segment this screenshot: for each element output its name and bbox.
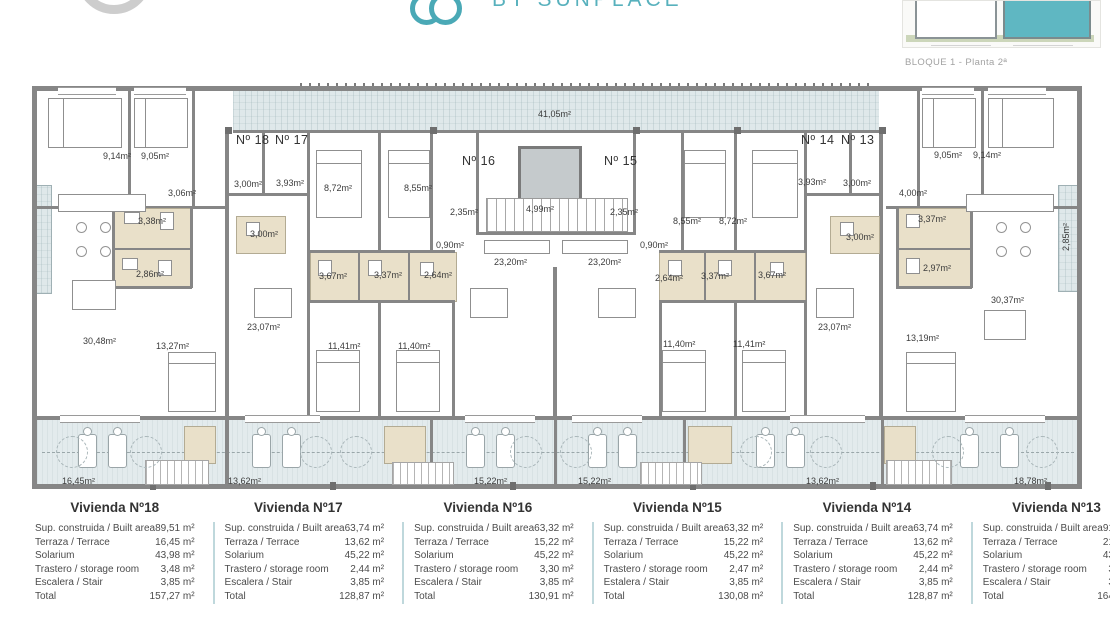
row-label: Solarium bbox=[793, 549, 832, 563]
table-row: Total164,33 m² bbox=[983, 590, 1110, 604]
area-label: 23,07m² bbox=[818, 322, 851, 332]
area-label: 0,90m² bbox=[436, 240, 464, 250]
area-label: 3,93m² bbox=[798, 177, 826, 187]
row-value: 43,98 m² bbox=[1103, 549, 1110, 563]
table-rows: Sup. construida / Built area63,74 m²Terr… bbox=[781, 522, 953, 604]
row-label: Solarium bbox=[414, 549, 453, 563]
row-label: Total bbox=[35, 590, 56, 604]
table-row: Escalera / Stair3,85 m² bbox=[225, 576, 385, 590]
row-label: Sup. construida / Built area bbox=[793, 522, 913, 536]
row-label: Estalera / Stair bbox=[604, 576, 670, 590]
area-label: 13,19m² bbox=[906, 333, 939, 343]
table-title: Vivienda Nº14 bbox=[781, 500, 953, 515]
area-label: 2,86m² bbox=[136, 269, 164, 279]
terrace-area-label: 15,22m² bbox=[474, 476, 507, 486]
row-label: Trastero / storage room bbox=[983, 563, 1087, 577]
unit-number-label: Nº 15 bbox=[604, 154, 637, 168]
area-label: 2,64m² bbox=[655, 273, 683, 283]
row-value: 21,63 m² bbox=[1103, 536, 1110, 550]
table-row: Solarium45,22 m² bbox=[414, 549, 574, 563]
table-title: Vivienda Nº17 bbox=[213, 500, 385, 515]
table-row: Sup. construida / Built area63,74 m² bbox=[793, 522, 953, 536]
terrace-area-label: 16,45m² bbox=[62, 476, 95, 486]
table-row: Trastero / storage room2,44 m² bbox=[793, 563, 953, 577]
table-row: Escalera / Stair3,85 m² bbox=[35, 576, 195, 590]
area-label: 2,97m² bbox=[923, 263, 951, 273]
terrace-area-label: 13,62m² bbox=[228, 476, 261, 486]
area-label: 8,55m² bbox=[673, 216, 701, 226]
table-row: Trastero / storage room2,47 m² bbox=[604, 563, 764, 577]
row-label: Total bbox=[793, 590, 814, 604]
table-rows: Sup. construida / Built area89,51 m²Terr… bbox=[35, 522, 195, 604]
table-row: Solarium43,98 m² bbox=[35, 549, 195, 563]
table-row: Total128,87 m² bbox=[793, 590, 953, 604]
vivienda-summary-table: Vivienda Nº16Sup. construida / Built are… bbox=[393, 500, 583, 604]
row-value: 13,62 m² bbox=[345, 536, 384, 550]
table-rows: Sup. construida / Built area63,32 m²Terr… bbox=[402, 522, 574, 604]
area-label: 8,72m² bbox=[324, 183, 352, 193]
table-row: Trastero / storage room3,48 m² bbox=[35, 563, 195, 577]
area-label: 3,00m² bbox=[250, 229, 278, 239]
table-row: Trastero / storage room3,48 m² bbox=[983, 563, 1110, 577]
table-row: Total130,08 m² bbox=[604, 590, 764, 604]
unit-number-label: Nº 18 bbox=[236, 133, 269, 147]
area-label: 11,40m² bbox=[663, 339, 695, 349]
row-label: Escalera / Stair bbox=[35, 576, 103, 590]
area-label: 3,67m² bbox=[758, 270, 786, 280]
table-row: Solarium43,98 m² bbox=[983, 549, 1110, 563]
row-value: 164,33 m² bbox=[1097, 590, 1110, 604]
table-row: Terraza / Terrace15,22 m² bbox=[414, 536, 574, 550]
area-label: 30,48m² bbox=[83, 336, 116, 346]
terrace-area-label: 13,62m² bbox=[806, 476, 839, 486]
area-label: 8,55m² bbox=[404, 183, 432, 193]
table-row: Escalera / Stair3,85 m² bbox=[983, 576, 1110, 590]
row-value: 128,87 m² bbox=[339, 590, 384, 604]
unit-number-label: Nº 17 bbox=[275, 133, 308, 147]
area-label: 3,00m² bbox=[234, 179, 262, 189]
area-label: 9,14m² bbox=[103, 151, 131, 161]
table-rows: Sup. construida / Built area63,32 m²Terr… bbox=[592, 522, 764, 604]
table-row: Sup. construida / Built area91,39 m² bbox=[983, 522, 1110, 536]
vivienda-summary-table: Vivienda Nº17Sup. construida / Built are… bbox=[204, 500, 394, 604]
area-label: 3,00m² bbox=[843, 178, 871, 188]
row-label: Escalera / Stair bbox=[793, 576, 861, 590]
table-title: Vivienda Nº18 bbox=[35, 500, 195, 515]
area-label: 4,00m² bbox=[899, 188, 927, 198]
area-label: 13,27m² bbox=[156, 341, 189, 351]
table-row: Sup. construida / Built area63,32 m² bbox=[604, 522, 764, 536]
vivienda-summary-table: Vivienda Nº15Sup. construida / Built are… bbox=[583, 500, 773, 604]
row-value: 45,22 m² bbox=[345, 549, 384, 563]
table-row: Solarium45,22 m² bbox=[604, 549, 764, 563]
row-value: 91,39 m² bbox=[1103, 522, 1110, 536]
area-label: 4,99m² bbox=[526, 204, 554, 214]
table-row: Total130,91 m² bbox=[414, 590, 574, 604]
area-tables: Vivienda Nº18Sup. construida / Built are… bbox=[26, 500, 1086, 604]
row-value: 63,32 m² bbox=[534, 522, 573, 536]
table-rows: Sup. construida / Built area63,74 m²Terr… bbox=[213, 522, 385, 604]
area-label: 23,07m² bbox=[247, 322, 280, 332]
row-value: 45,22 m² bbox=[913, 549, 952, 563]
row-value: 130,08 m² bbox=[718, 590, 763, 604]
row-value: 63,74 m² bbox=[913, 522, 952, 536]
table-row: Total128,87 m² bbox=[225, 590, 385, 604]
area-label: 11,40m² bbox=[398, 341, 430, 351]
area-label: 2,35m² bbox=[610, 207, 638, 217]
row-label: Terraza / Terrace bbox=[35, 536, 110, 550]
table-row: Terraza / Terrace15,22 m² bbox=[604, 536, 764, 550]
row-value: 3,48 m² bbox=[161, 563, 195, 577]
table-row: Terraza / Terrace21,63 m² bbox=[983, 536, 1110, 550]
table-row: Escalera / Stair3,85 m² bbox=[793, 576, 953, 590]
row-value: 63,32 m² bbox=[724, 522, 763, 536]
area-label: 9,05m² bbox=[934, 150, 962, 160]
table-row: Terraza / Terrace13,62 m² bbox=[793, 536, 953, 550]
area-label: 3,06m² bbox=[168, 188, 196, 198]
row-value: 3,85 m² bbox=[729, 576, 763, 590]
row-value: 157,27 m² bbox=[150, 590, 195, 604]
row-label: Solarium bbox=[983, 549, 1022, 563]
row-label: Terraza / Terrace bbox=[793, 536, 868, 550]
table-rows: Sup. construida / Built area91,39 m²Terr… bbox=[971, 522, 1110, 604]
area-label: 2,85m² bbox=[1061, 223, 1071, 251]
area-label: 41,05m² bbox=[538, 109, 571, 119]
area-label: 3,93m² bbox=[276, 178, 304, 188]
row-value: 3,85 m² bbox=[540, 576, 574, 590]
row-label: Total bbox=[983, 590, 1004, 604]
unit-number-label: Nº 13 bbox=[841, 133, 874, 147]
area-label: 2,64m² bbox=[424, 270, 452, 280]
row-label: Escalera / Stair bbox=[983, 576, 1051, 590]
row-value: 13,62 m² bbox=[913, 536, 952, 550]
row-value: 2,44 m² bbox=[919, 563, 953, 577]
row-value: 3,85 m² bbox=[161, 576, 195, 590]
area-label: 9,05m² bbox=[141, 151, 169, 161]
row-label: Terraza / Terrace bbox=[983, 536, 1058, 550]
row-label: Sup. construida / Built area bbox=[35, 522, 155, 536]
area-label: 9,14m² bbox=[973, 150, 1001, 160]
row-label: Trastero / storage room bbox=[604, 563, 708, 577]
table-row: Estalera / Stair3,85 m² bbox=[604, 576, 764, 590]
area-label: 3,38m² bbox=[138, 216, 166, 226]
row-label: Sup. construida / Built area bbox=[983, 522, 1103, 536]
row-label: Terraza / Terrace bbox=[604, 536, 679, 550]
area-label: 11,41m² bbox=[733, 339, 765, 349]
row-label: Trastero / storage room bbox=[414, 563, 518, 577]
row-label: Total bbox=[225, 590, 246, 604]
row-value: 43,98 m² bbox=[155, 549, 194, 563]
row-label: Trastero / storage room bbox=[35, 563, 139, 577]
row-label: Trastero / storage room bbox=[793, 563, 897, 577]
row-label: Total bbox=[604, 590, 625, 604]
table-row: Trastero / storage room2,44 m² bbox=[225, 563, 385, 577]
terrace-area-label: 18,78m² bbox=[1014, 476, 1047, 486]
unit-number-label: Nº 16 bbox=[462, 154, 495, 168]
row-label: Terraza / Terrace bbox=[225, 536, 300, 550]
row-value: 89,51 m² bbox=[155, 522, 194, 536]
area-label: 3,37m² bbox=[374, 270, 402, 280]
table-title: Vivienda Nº13 bbox=[971, 500, 1110, 515]
row-value: 3,30 m² bbox=[540, 563, 574, 577]
area-label: 23,20m² bbox=[588, 257, 621, 267]
table-row: Sup. construida / Built area63,74 m² bbox=[225, 522, 385, 536]
table-row: Solarium45,22 m² bbox=[225, 549, 385, 563]
row-value: 45,22 m² bbox=[724, 549, 763, 563]
vivienda-summary-table: Vivienda Nº14Sup. construida / Built are… bbox=[772, 500, 962, 604]
row-label: Solarium bbox=[35, 549, 74, 563]
row-label: Sup. construida / Built area bbox=[414, 522, 534, 536]
row-value: 3,85 m² bbox=[350, 576, 384, 590]
row-label: Trastero / storage room bbox=[225, 563, 329, 577]
row-label: Sup. construida / Built area bbox=[604, 522, 724, 536]
row-label: Escalera / Stair bbox=[414, 576, 482, 590]
table-row: Sup. construida / Built area63,32 m² bbox=[414, 522, 574, 536]
row-label: Sup. construida / Built area bbox=[225, 522, 345, 536]
table-row: Terraza / Terrace16,45 m² bbox=[35, 536, 195, 550]
row-value: 2,44 m² bbox=[350, 563, 384, 577]
area-label: 3,37m² bbox=[918, 214, 946, 224]
row-value: 3,85 m² bbox=[919, 576, 953, 590]
table-row: Terraza / Terrace13,62 m² bbox=[225, 536, 385, 550]
area-label: 3,00m² bbox=[846, 232, 874, 242]
row-label: Total bbox=[414, 590, 435, 604]
row-value: 130,91 m² bbox=[529, 590, 574, 604]
table-row: Total157,27 m² bbox=[35, 590, 195, 604]
row-value: 15,22 m² bbox=[724, 536, 763, 550]
table-row: Escalera / Stair3,85 m² bbox=[414, 576, 574, 590]
table-row: Trastero / storage room3,30 m² bbox=[414, 563, 574, 577]
floorplan-page: BY SUNPLACE BLOQUE 1 - Planta 2ª bbox=[0, 0, 1110, 626]
area-label: 0,90m² bbox=[640, 240, 668, 250]
unit-number-label: Nº 14 bbox=[801, 133, 834, 147]
row-value: 15,22 m² bbox=[534, 536, 573, 550]
row-value: 128,87 m² bbox=[908, 590, 953, 604]
area-label: 8,72m² bbox=[719, 216, 747, 226]
row-value: 16,45 m² bbox=[155, 536, 194, 550]
row-value: 45,22 m² bbox=[534, 549, 573, 563]
area-label: 11,41m² bbox=[328, 341, 360, 351]
row-value: 2,47 m² bbox=[729, 563, 763, 577]
table-row: Solarium45,22 m² bbox=[793, 549, 953, 563]
table-title: Vivienda Nº16 bbox=[402, 500, 574, 515]
row-value: 63,74 m² bbox=[345, 522, 384, 536]
area-label: 3,37m² bbox=[701, 271, 729, 281]
vivienda-summary-table: Vivienda Nº18Sup. construida / Built are… bbox=[26, 500, 204, 604]
area-label: 30,37m² bbox=[991, 295, 1024, 305]
row-label: Escalera / Stair bbox=[225, 576, 293, 590]
vivienda-summary-table: Vivienda Nº13Sup. construida / Built are… bbox=[962, 500, 1110, 604]
area-label: 23,20m² bbox=[494, 257, 527, 267]
row-label: Solarium bbox=[604, 549, 643, 563]
table-row: Sup. construida / Built area89,51 m² bbox=[35, 522, 195, 536]
table-title: Vivienda Nº15 bbox=[592, 500, 764, 515]
area-label: 3,67m² bbox=[319, 271, 347, 281]
area-label: 2,35m² bbox=[450, 207, 478, 217]
terrace-area-label: 15,22m² bbox=[578, 476, 611, 486]
row-label: Terraza / Terrace bbox=[414, 536, 489, 550]
row-label: Solarium bbox=[225, 549, 264, 563]
